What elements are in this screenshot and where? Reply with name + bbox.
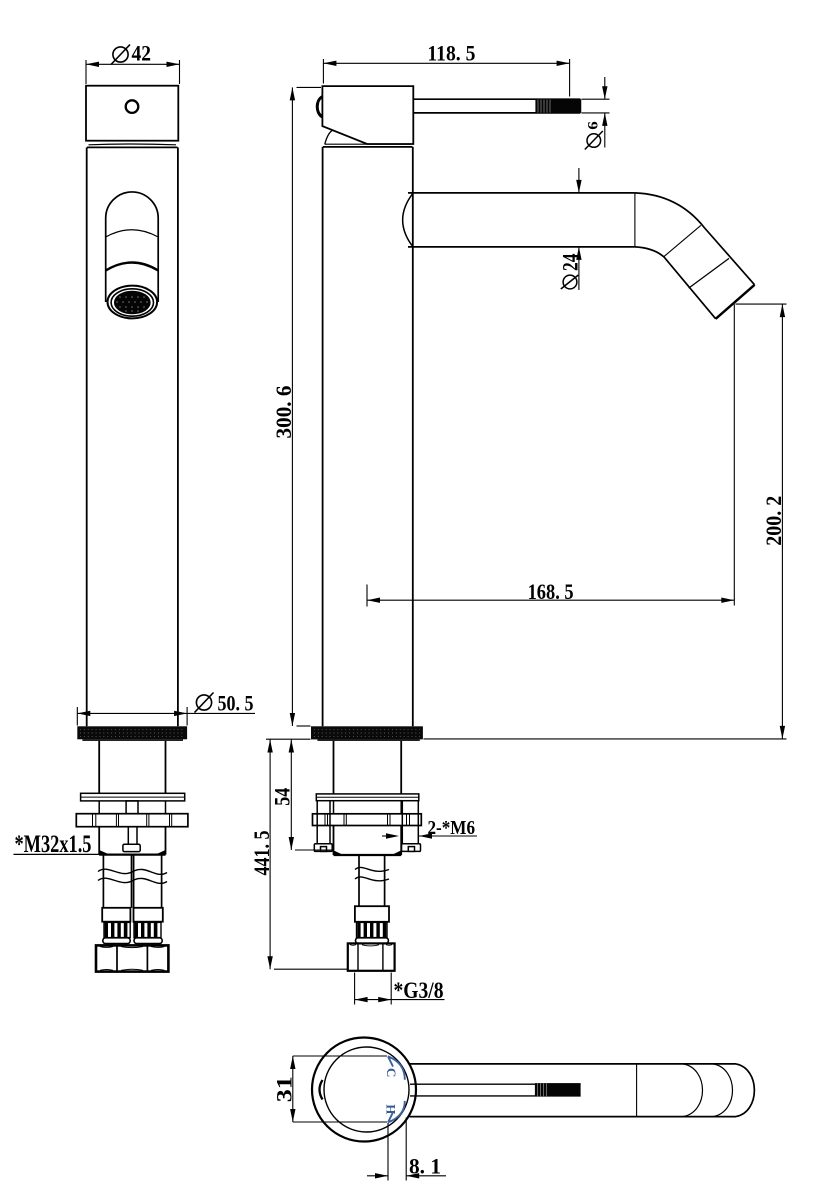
svg-text:8. 1: 8. 1 — [409, 1154, 441, 1179]
svg-text:50. 5: 50. 5 — [218, 691, 254, 716]
svg-text:200. 2: 200. 2 — [761, 496, 786, 546]
svg-text:300. 6: 300. 6 — [271, 386, 296, 439]
svg-text:2-*M6: 2-*M6 — [428, 818, 476, 839]
svg-text:*M32x1.5: *M32x1.5 — [15, 831, 92, 858]
svg-text:24: 24 — [557, 254, 582, 272]
svg-text:168. 5: 168. 5 — [528, 579, 574, 604]
svg-text:H: H — [383, 1104, 398, 1114]
svg-text:441. 5: 441. 5 — [249, 831, 274, 876]
svg-text:42: 42 — [132, 41, 152, 66]
svg-text:31: 31 — [272, 1076, 297, 1102]
svg-text:*G3/8: *G3/8 — [394, 978, 444, 1003]
svg-text:C: C — [384, 1068, 399, 1077]
svg-text:118. 5: 118. 5 — [427, 41, 475, 66]
svg-text:54: 54 — [270, 788, 295, 806]
svg-text:6: 6 — [585, 121, 601, 130]
